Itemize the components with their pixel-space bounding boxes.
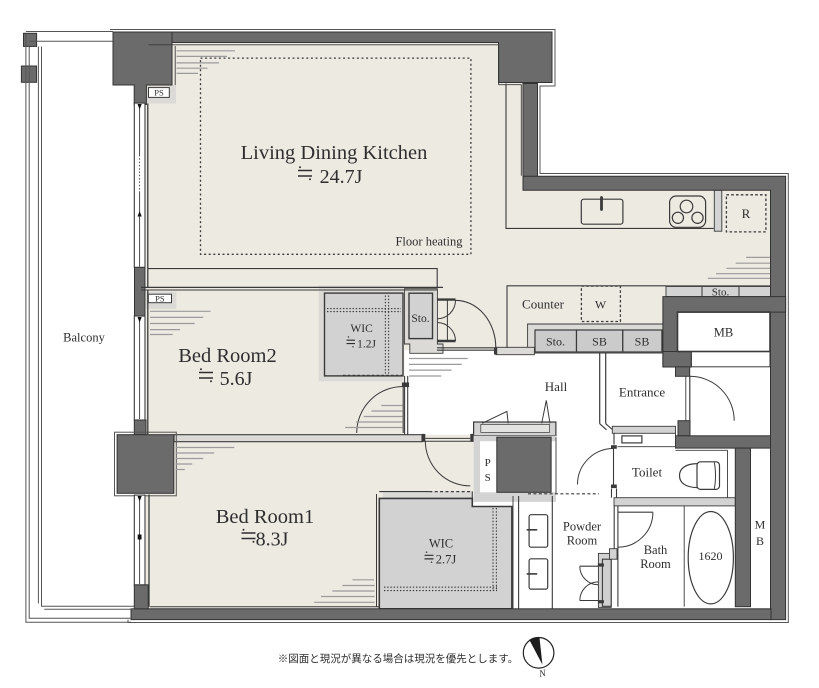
svg-text:Counter: Counter [522,297,565,312]
svg-text:8.3J: 8.3J [256,529,289,551]
svg-text:Floor heating: Floor heating [395,235,463,249]
svg-text:Bath: Bath [644,543,668,557]
svg-text:Hall: Hall [545,379,568,394]
svg-text:B: B [756,534,764,548]
svg-text:R: R [742,206,751,221]
svg-text:Bed Room1: Bed Room1 [216,506,315,528]
svg-text:Room: Room [567,534,598,548]
svg-text:2.7J: 2.7J [436,553,457,567]
svg-text:MB: MB [714,326,733,340]
svg-text:Sto.: Sto. [712,287,730,299]
svg-text:Room: Room [640,557,671,571]
svg-text:Powder: Powder [563,520,602,534]
svg-text:SB: SB [635,335,650,349]
svg-text:PS: PS [154,88,164,98]
svg-text:5.6J: 5.6J [220,368,253,390]
svg-text:WIC: WIC [350,323,373,335]
svg-text:1.2J: 1.2J [357,339,376,351]
svg-text:Sto.: Sto. [411,313,429,325]
svg-text:Sto.: Sto. [546,335,565,349]
svg-text:Toilet: Toilet [632,465,663,480]
svg-text:1620: 1620 [699,549,723,563]
svg-text:W: W [595,298,607,312]
svg-text:PS: PS [155,294,165,304]
svg-text:N: N [537,668,548,681]
svg-text:P: P [485,457,491,469]
svg-text:Balcony: Balcony [63,331,105,345]
svg-text:※図面と現況が異なる場合は現況を優先とします。: ※図面と現況が異なる場合は現況を優先とします。 [278,652,518,665]
svg-text:SB: SB [592,335,607,349]
svg-text:Living Dining Kitchen: Living Dining Kitchen [241,142,428,164]
svg-text:S: S [485,472,491,484]
svg-text:Entrance: Entrance [619,385,665,400]
svg-text:24.7J: 24.7J [320,166,363,188]
svg-text:WIC: WIC [429,537,453,551]
svg-text:Bed Room2: Bed Room2 [178,345,277,367]
svg-text:M: M [755,518,766,532]
